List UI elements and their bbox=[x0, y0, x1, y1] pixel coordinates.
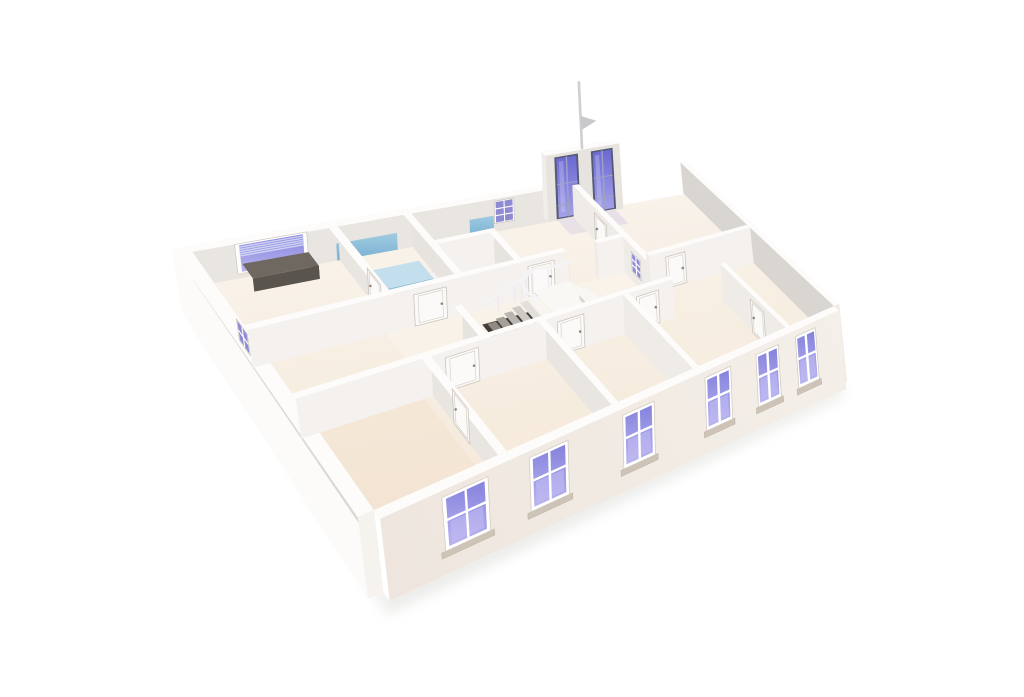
roof-pole bbox=[579, 82, 596, 148]
screenshot-root bbox=[0, 0, 1024, 697]
back-rooms-divider bbox=[594, 234, 625, 280]
building-cutaway-render bbox=[0, 0, 1024, 697]
small-back-window bbox=[494, 198, 514, 224]
